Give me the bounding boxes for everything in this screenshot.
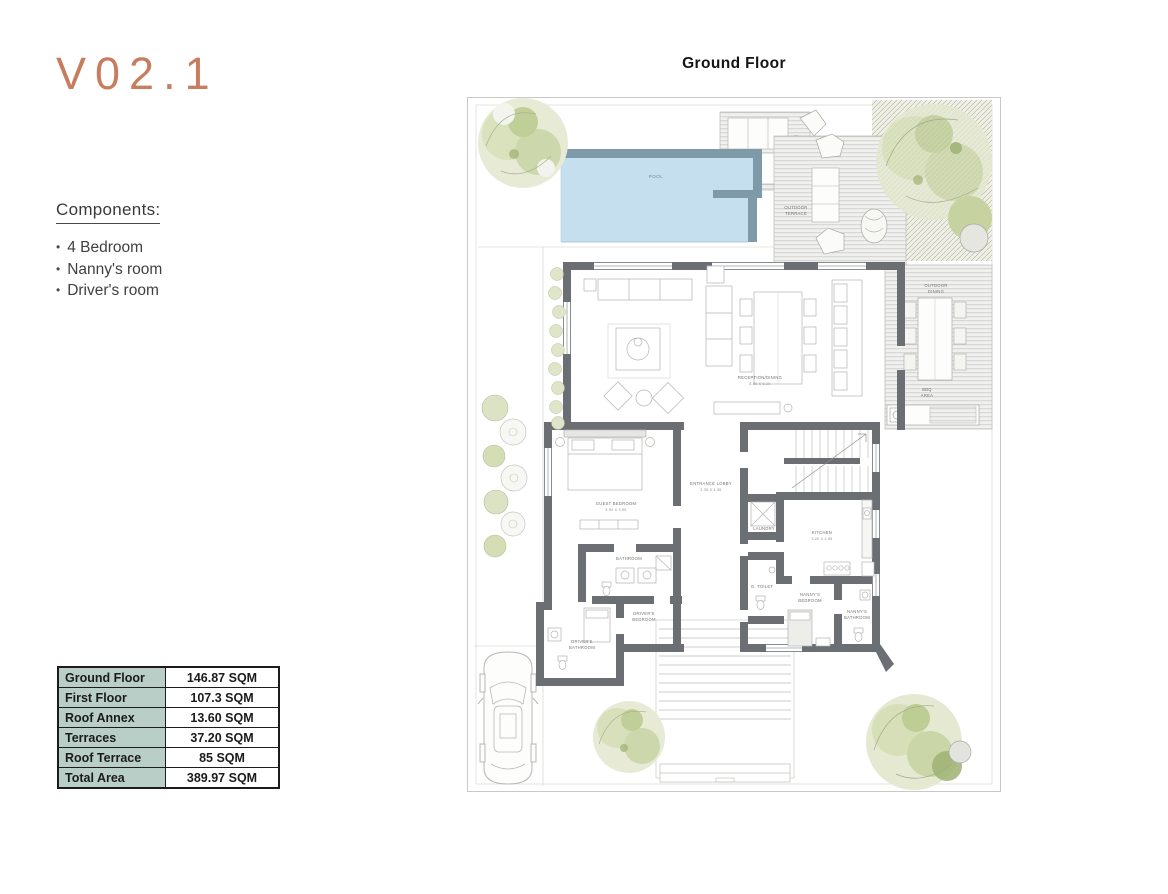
components-list: 4 Bedroom Nanny's room Driver's room (56, 237, 162, 302)
label-reception-dining-dim: 8.80 X 5.10 (749, 382, 770, 386)
label-entrance-lobby-dim: 3.35 X 4.35 (700, 488, 721, 492)
label-outdoor-terrace: OUTDOOR (784, 205, 807, 210)
area-row-label: Roof Annex (58, 708, 166, 728)
label-drivers-bedroom: DRIVER'S (633, 611, 654, 616)
components-title: Components: (56, 200, 160, 224)
swimming-pool (552, 149, 762, 242)
component-item: Driver's room (56, 280, 162, 302)
area-row-label: Roof Terrace (58, 748, 166, 768)
label-bbq-area: AREA (921, 393, 933, 398)
label-nannys-bedroom: BEDROOM (798, 598, 822, 603)
label-drivers-bathroom: DRIVER'S (571, 639, 592, 644)
label-pool: POOL (649, 174, 664, 179)
laundry-fixtures (751, 502, 775, 526)
plan-title: Ground Floor (466, 55, 1002, 73)
area-table: Ground Floor146.87 SQM First Floor107.3 … (57, 666, 280, 789)
car-icon (478, 652, 538, 784)
tree-icon (478, 98, 568, 188)
label-kitchen: KITCHEN (812, 530, 832, 535)
page: V02.1 Components: 4 Bedroom Nanny's room… (0, 0, 1168, 894)
area-row-value: 107.3 SQM (166, 688, 280, 708)
area-row-value: 389.97 SQM (166, 768, 280, 789)
component-item: Nanny's room (56, 259, 162, 281)
label-kitchen-dim: 3.20 X 2.95 (811, 537, 832, 541)
brand-logo: V02.1 (56, 48, 219, 100)
area-row-label: Total Area (58, 768, 166, 789)
ground-floor-plan: POOL OUTDOOR TERRACE OUTDOOR DINING BBQ … (466, 96, 1002, 793)
area-row-label: First Floor (58, 688, 166, 708)
label-outdoor-dining: DINING (928, 289, 944, 294)
label-g-toilet: G. TOILET (751, 584, 774, 589)
label-nannys-bathroom: NANNY'S (847, 609, 867, 614)
area-row-value: 37.20 SQM (166, 728, 280, 748)
area-table-row: Ground Floor146.87 SQM (58, 667, 279, 688)
label-bbq-area: BBQ (922, 387, 932, 392)
area-table-row: Terraces37.20 SQM (58, 728, 279, 748)
label-drivers-bathroom: BATHROOM (569, 645, 595, 650)
label-outdoor-dining: OUTDOOR (924, 283, 947, 288)
label-guest-bedroom: GUEST BEDROOM (596, 501, 637, 506)
label-nannys-bedroom: NANNY'S (800, 592, 820, 597)
label-nannys-bathroom: BATHROOM (844, 615, 870, 620)
component-item: 4 Bedroom (56, 237, 162, 259)
area-table-row: Roof Terrace85 SQM (58, 748, 279, 768)
area-row-label: Terraces (58, 728, 166, 748)
components-section: Components: 4 Bedroom Nanny's room Drive… (56, 200, 162, 302)
label-guest-bedroom-dim: 3.90 X 3.90 (605, 508, 626, 512)
area-row-value: 85 SQM (166, 748, 280, 768)
label-laundry: LAUNDRY (753, 526, 775, 531)
area-row-label: Ground Floor (58, 667, 166, 688)
area-row-value: 146.87 SQM (166, 667, 280, 688)
area-table-row: Roof Annex13.60 SQM (58, 708, 279, 728)
area-row-value: 13.60 SQM (166, 708, 280, 728)
label-bathroom: BATHROOM (616, 556, 642, 561)
label-reception-dining: RECEPTION/DINING (738, 375, 782, 380)
area-table-row: First Floor107.3 SQM (58, 688, 279, 708)
area-table-row: Total Area389.97 SQM (58, 768, 279, 789)
label-drivers-bedroom: BEDROOM (632, 617, 656, 622)
label-outdoor-terrace: TERRACE (785, 211, 807, 216)
label-entrance-lobby: ENTRANCE LOBBY (690, 481, 732, 486)
tree-icon (593, 701, 665, 773)
